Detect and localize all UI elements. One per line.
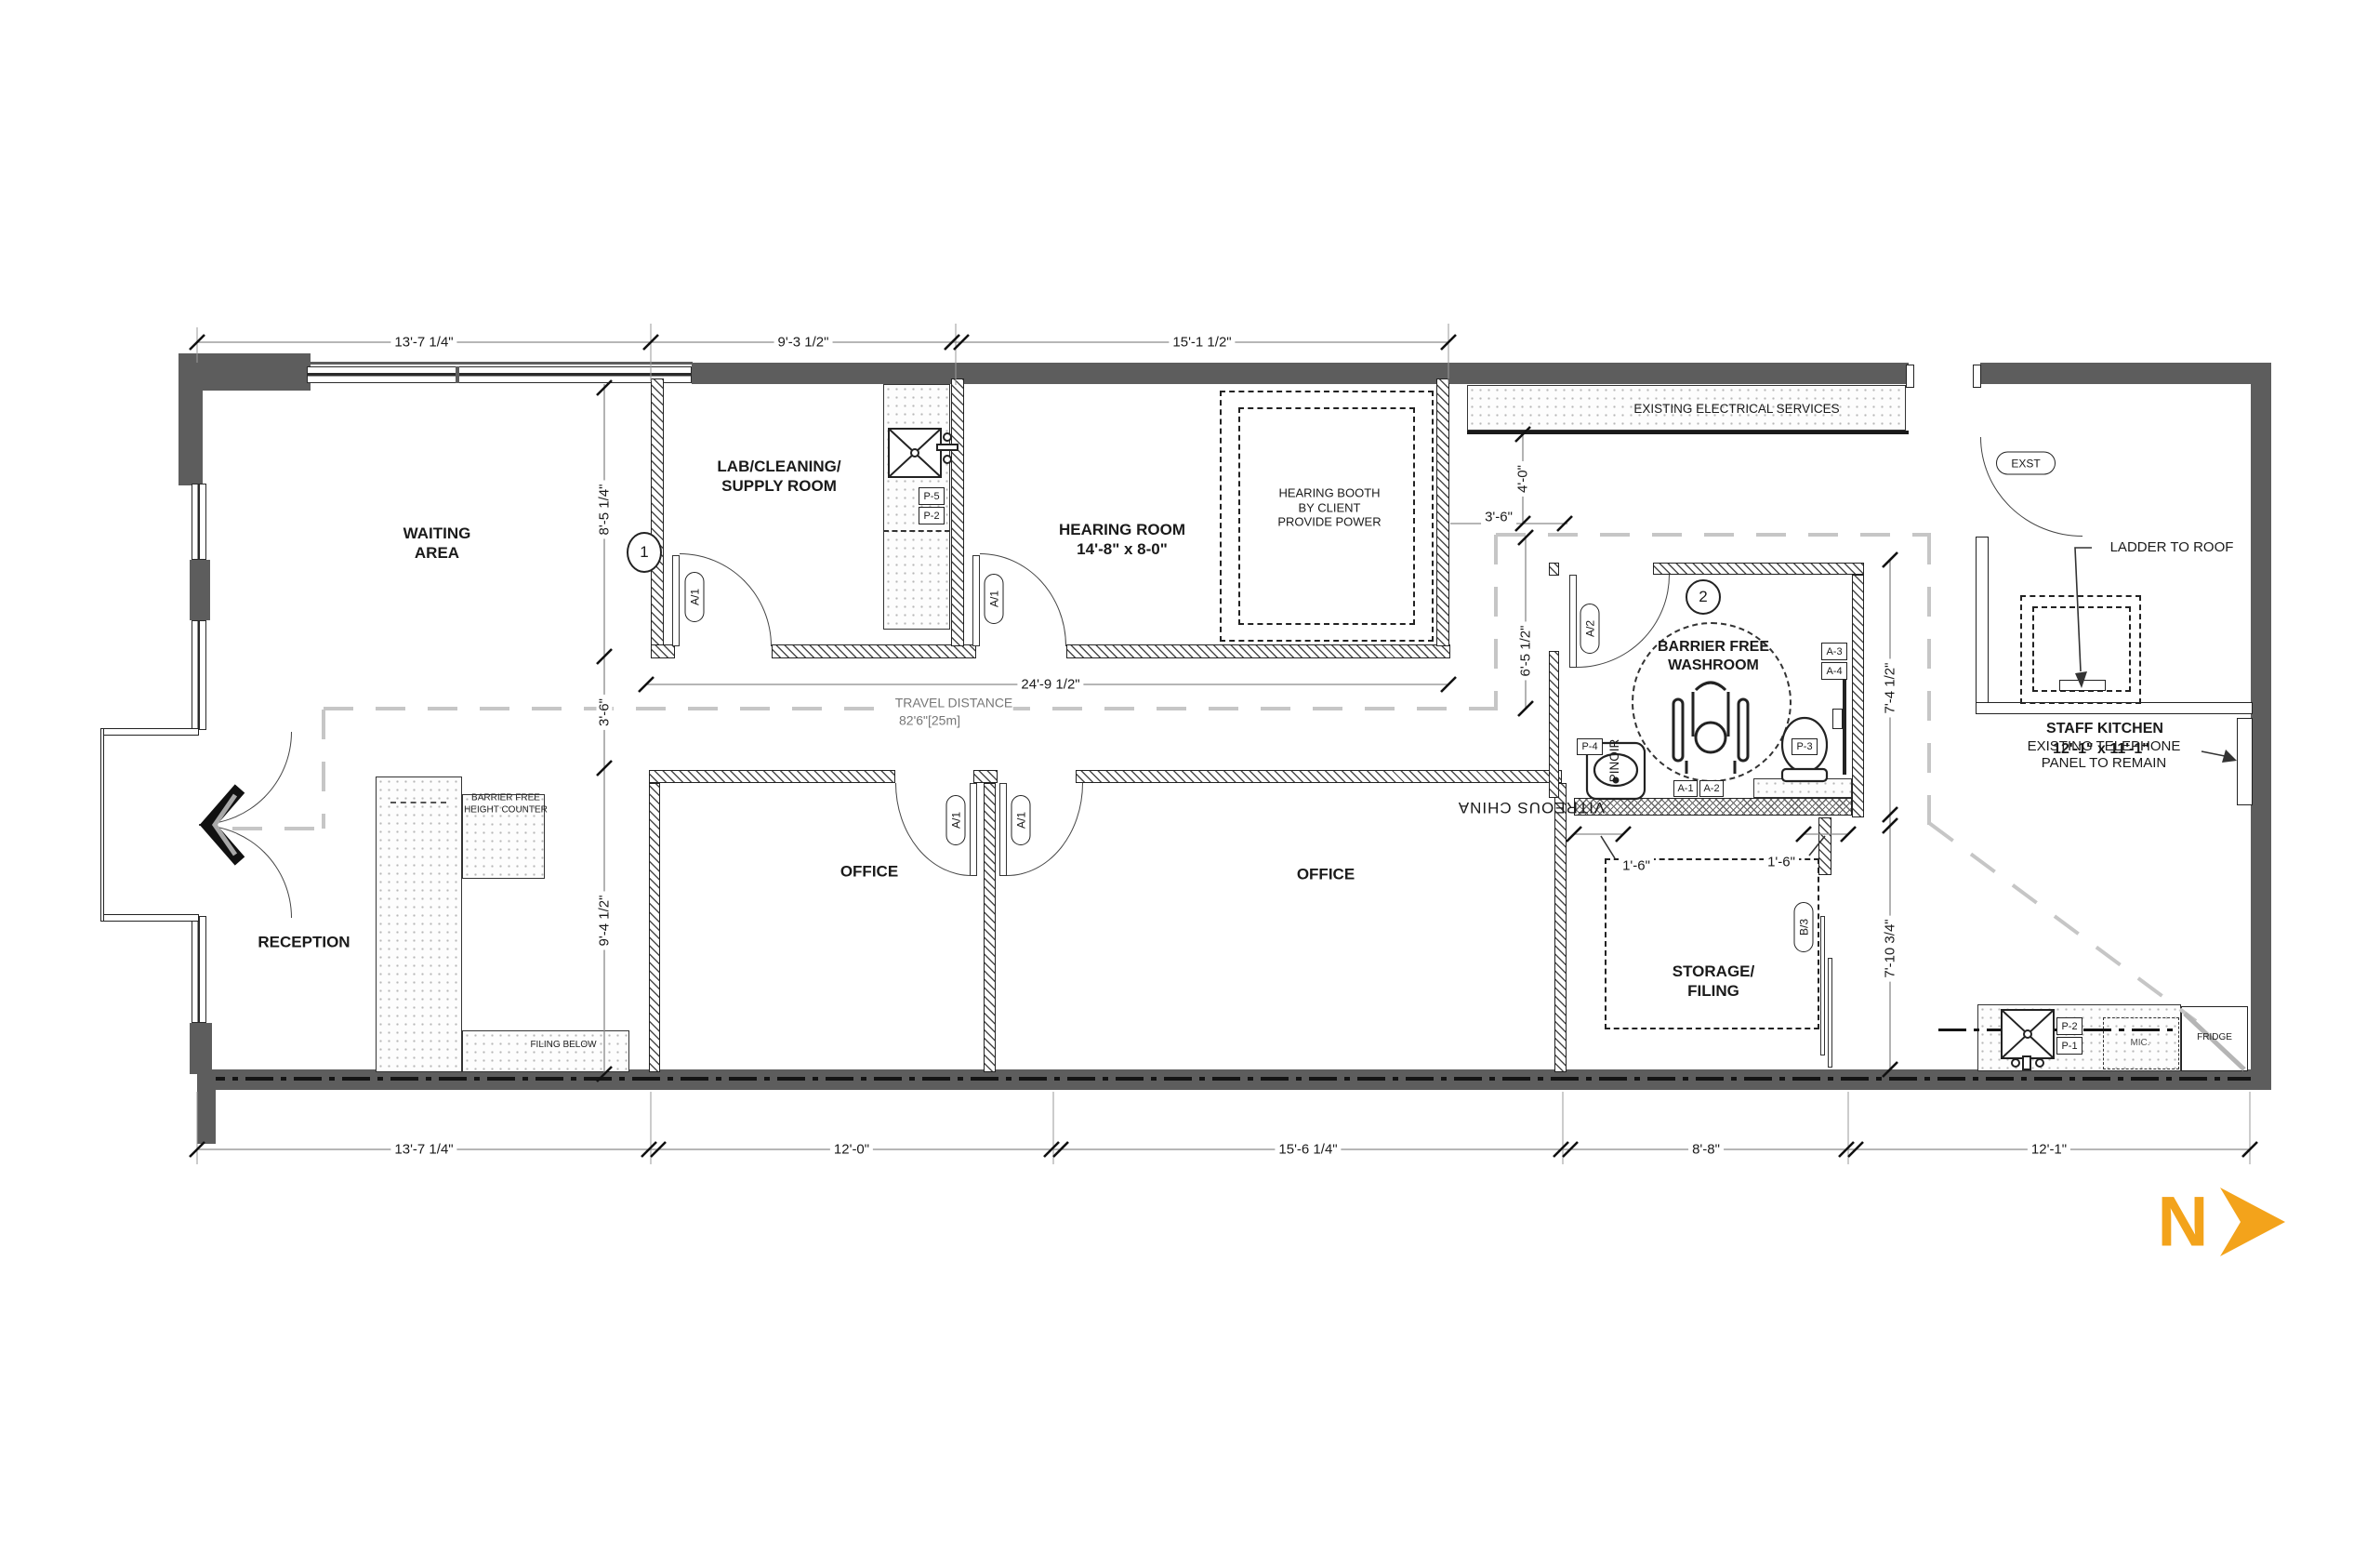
dim-6-5: 6'-5 1/2" <box>1518 622 1534 681</box>
parapet-line <box>307 362 693 365</box>
wall-waiting-lab <box>651 378 664 646</box>
reception-label: RECEPTION <box>258 932 350 951</box>
wall-lab-bottom-1 <box>651 644 675 658</box>
wall-office2-right <box>1554 783 1567 1072</box>
wall-washroom-plumbing <box>1574 798 1852 816</box>
dim-1-6-left: 1'-6" <box>1619 858 1654 874</box>
wall-left-upper <box>178 353 203 485</box>
dim-left-2: 3'-6" <box>597 695 613 730</box>
wall-top-right <box>1980 363 2251 384</box>
wall-left-mid <box>190 560 210 620</box>
dim-1-6-right: 1'-6" <box>1764 855 1799 870</box>
dim-bottom-5: 12'-1" <box>2028 1142 2070 1158</box>
dim-7-4: 7'-4 1/2" <box>1883 659 1898 718</box>
wall-left-lower <box>190 1023 212 1074</box>
dim-left-3: 9'-4 1/2" <box>597 892 613 950</box>
bf-counter-note: BARRIER FREE HEIGHT COUNTER <box>464 793 548 816</box>
door-tag-a1-office1: A/1 <box>946 795 966 845</box>
office2-door-leaf <box>999 783 1007 876</box>
fixture-tag-a4: A-4 <box>1821 662 1847 680</box>
vitreous-china-note: VITREOUS CHINA <box>1458 798 1606 816</box>
travel-path-up2 <box>1494 535 1498 709</box>
north-arrow-icon <box>2220 1188 2285 1256</box>
travel-path-entry <box>232 827 324 830</box>
travel-path-up1 <box>322 710 325 829</box>
travel-path-diagonal <box>1929 823 2196 1021</box>
floor-plan: WAITING AREA LAB/CLEANING/ SUPPLY ROOM H… <box>0 0 2380 1553</box>
wall-office-divider <box>984 783 996 1072</box>
window-top <box>307 366 692 383</box>
telephone-panel <box>2237 718 2253 805</box>
door-tag-a1-lab: A/1 <box>685 572 705 622</box>
wall-kitchen-vertical <box>1976 537 1989 706</box>
fridge-note: FRIDGE <box>2197 1032 2232 1044</box>
ladder-rung <box>2059 680 2106 691</box>
mic-note: MIC. <box>2130 1038 2149 1050</box>
lab-label: LAB/CLEANING/ SUPPLY ROOM <box>717 457 840 497</box>
washroom-grab-bar-mount <box>1832 709 1843 729</box>
ladder-note: LADDER TO ROOF <box>2110 539 2234 556</box>
storage-label: STORAGE/ FILING <box>1673 962 1754 1002</box>
north-label: N <box>2158 1182 2209 1263</box>
telephone-leader-arrow <box>2222 750 2237 763</box>
washroom-grab-bar <box>1843 663 1846 775</box>
dim-4-0: 4'-0" <box>1515 461 1531 497</box>
dim-bottom-2: 12'-0" <box>830 1142 873 1158</box>
office2-label: OFFICE <box>1297 864 1355 883</box>
lab-door-leaf <box>672 555 680 646</box>
wall-washroom-right <box>1852 575 1864 817</box>
wall-office1-left <box>649 783 660 1072</box>
window-left-3 <box>192 916 206 1023</box>
wall-bottom-left-tab <box>197 1069 216 1144</box>
vestibule-wall-top <box>100 728 199 736</box>
wall-lab-bottom-2 <box>772 644 976 658</box>
fixture-tag-a1s: A-1 <box>1673 780 1698 797</box>
fixture-tag-kp2: P-2 <box>2056 1017 2082 1035</box>
keynote-circle-2: 2 <box>1686 579 1721 615</box>
travel-distance-note-2: 82'6"[25m] <box>899 713 960 729</box>
window-left-2 <box>192 620 206 730</box>
dim-left-1: 8'-5 1/4" <box>597 481 613 539</box>
fixture-tag-p4: P-4 <box>1577 738 1603 755</box>
window-left-1 <box>192 484 206 560</box>
wall-top-main <box>692 363 1909 384</box>
fixture-tag-a3: A-3 <box>1821 643 1847 660</box>
dim-top-2: 9'-3 1/2" <box>774 335 833 351</box>
filing-below-note: FILING BELOW <box>530 1040 596 1052</box>
hearing-door-leaf <box>972 555 980 646</box>
reception-counter-filing <box>462 1030 629 1072</box>
wall-office-top-2 <box>1076 770 1562 783</box>
hearing-room-label: HEARING ROOM 14'-8" x 8-0" <box>1059 520 1185 560</box>
exst-tag: EXST <box>1996 452 2056 475</box>
wall-storage-right <box>1818 817 1831 875</box>
wall-washroom-top <box>1653 563 1864 575</box>
hearing-booth-label: HEARING BOOTH BY CLIENT PROVIDE POWER <box>1277 486 1381 530</box>
wall-hearing-right <box>1436 378 1449 646</box>
washroom-label: BARRIER FREE WASHROOM <box>1658 638 1769 675</box>
travel-distance-note-1: TRAVEL DISTANCE <box>895 696 1013 711</box>
wall-washroom-left <box>1549 651 1559 798</box>
office1-label: OFFICE <box>840 861 898 881</box>
washroom-counter <box>1753 778 1852 798</box>
keynote-circle-1: 1 <box>627 532 662 573</box>
dim-top-3: 15'-1 1/2" <box>1169 335 1235 351</box>
pinoir-note: PINOIR <box>1607 739 1622 783</box>
fixture-tag-kp1: P-1 <box>2056 1037 2082 1055</box>
wall-bottom-centerline <box>197 1077 2251 1081</box>
exst-door-frame-1 <box>1906 365 1914 388</box>
wall-office-top-mid <box>973 770 998 783</box>
wall-lab-hearing <box>951 378 964 646</box>
exst-door-frame-2 <box>1973 365 1981 388</box>
travel-path-down <box>1927 535 1931 825</box>
door-tag-a1-hearing: A/1 <box>985 574 1004 624</box>
wall-washroom-left-stub <box>1549 563 1559 576</box>
electrical-band-underline <box>1467 431 1909 434</box>
kitchen-label: STAFF KITCHEN <box>2046 720 2163 738</box>
wall-right <box>2251 363 2271 1090</box>
fixture-tag-p5: P-5 <box>919 487 945 505</box>
dim-top-1: 13'-7 1/4" <box>390 335 456 351</box>
fixture-tag-p2: P-2 <box>919 507 945 524</box>
washroom-door-leaf <box>1569 575 1577 668</box>
reception-counter-slab <box>376 776 462 1072</box>
wall-hearing-bottom <box>1066 644 1450 658</box>
fixture-tag-p3: P-3 <box>1792 738 1818 755</box>
storage-pocket-door-1 <box>1820 916 1825 1055</box>
electrical-label: EXISTING ELECTRICAL SERVICES <box>1633 402 1839 417</box>
dim-bottom-3: 15'-6 1/4" <box>1275 1142 1341 1158</box>
travel-path-upper <box>1496 533 1931 537</box>
vestibule-wall-left <box>100 728 104 922</box>
door-tag-a1-office2: A/1 <box>1011 795 1031 845</box>
dim-7-10: 7'-10 3/4" <box>1883 915 1898 981</box>
door-tag-b3-storage: B/3 <box>1794 902 1814 952</box>
telephone-note: EXISTING TELEPHONE PANEL TO REMAIN <box>2028 738 2181 772</box>
storage-zone <box>1605 858 1819 1029</box>
vestibule-wall-bottom <box>100 914 199 922</box>
waiting-area-label: WAITING AREA <box>403 524 471 564</box>
dim-bottom-4: 8'-8" <box>1688 1142 1724 1158</box>
window-top-mullion <box>456 366 459 383</box>
entry-door-arc-upper <box>199 732 292 825</box>
dim-mid: 24'-9 1/2" <box>1017 677 1083 693</box>
entry-door-arc-lower <box>199 825 292 918</box>
door-tag-a2-washroom: A/2 <box>1580 604 1600 654</box>
lab-counter-dashed-edge <box>883 530 950 532</box>
fixture-tag-a2s: A-2 <box>1699 780 1724 797</box>
reception-counter-dashed <box>390 802 446 803</box>
wall-office-top-1 <box>649 770 895 783</box>
dim-3-6: 3'-6" <box>1481 510 1516 525</box>
dim-bottom-1: 13'-7 1/4" <box>390 1142 456 1158</box>
storage-pocket-door-2 <box>1828 958 1832 1068</box>
